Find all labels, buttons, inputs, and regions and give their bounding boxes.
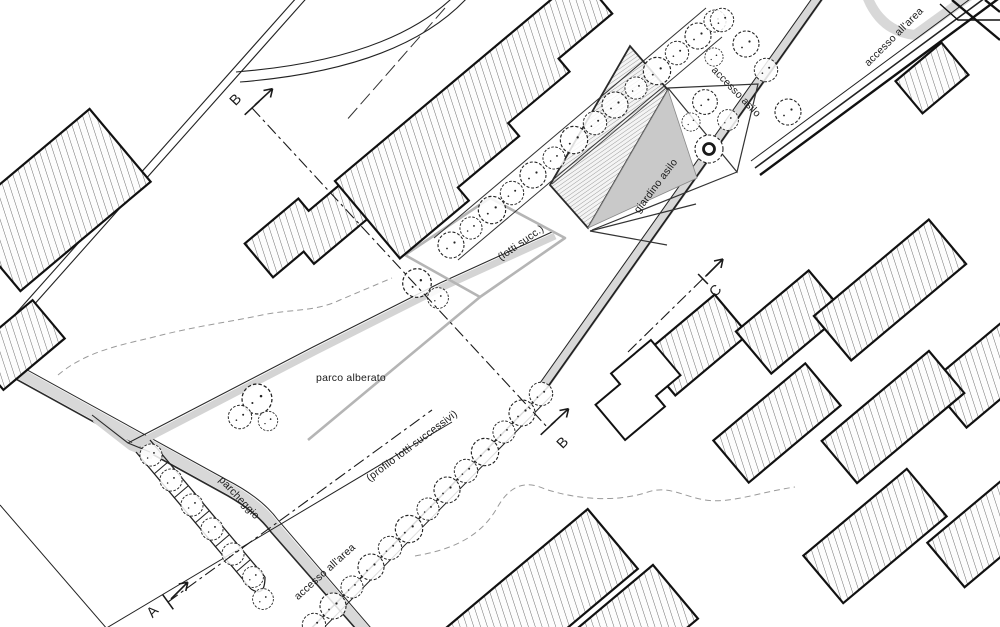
tree-icon bbox=[754, 58, 777, 81]
building-hatched bbox=[822, 351, 965, 483]
tree-icon bbox=[543, 147, 565, 169]
tree-icon bbox=[665, 41, 688, 64]
section-marker-a bbox=[163, 582, 188, 609]
tree-icon bbox=[643, 57, 670, 84]
tree-icon bbox=[243, 567, 264, 588]
tree-icon bbox=[583, 111, 606, 134]
tree-icon bbox=[341, 576, 363, 598]
building-hatched bbox=[896, 43, 969, 114]
buildings-context bbox=[0, 0, 1000, 627]
tree-icon bbox=[253, 589, 274, 610]
tree-icon bbox=[509, 400, 535, 426]
tree-icon bbox=[438, 232, 464, 258]
tree-icon bbox=[417, 498, 439, 520]
tree-icon bbox=[222, 543, 244, 565]
tree-icon bbox=[181, 494, 203, 516]
road-edge bbox=[236, 0, 470, 72]
tree-icon bbox=[428, 288, 449, 309]
boundary-lines bbox=[0, 422, 452, 627]
section-line-a bbox=[168, 410, 432, 602]
section-tick bbox=[163, 595, 174, 610]
tree-icon bbox=[493, 421, 515, 443]
tree-icon bbox=[454, 459, 477, 482]
tree-icon bbox=[500, 181, 523, 204]
tree-icon bbox=[560, 126, 587, 153]
tree-icon bbox=[378, 536, 401, 559]
building-hatched bbox=[713, 363, 840, 482]
tree-icon bbox=[733, 31, 759, 57]
building-hatched bbox=[803, 469, 946, 603]
road-gray-band bbox=[862, 0, 1000, 35]
tree-icon bbox=[775, 99, 801, 125]
tree-icon bbox=[302, 613, 325, 627]
tree-icon bbox=[602, 92, 628, 118]
tree-icon bbox=[140, 444, 162, 466]
trees-garden bbox=[682, 90, 739, 163]
tree-icon bbox=[201, 518, 223, 540]
tree-icon bbox=[625, 77, 647, 99]
road-edge bbox=[240, 0, 478, 82]
label-parco-alberato: parco alberato bbox=[316, 372, 386, 384]
tree-icon bbox=[160, 469, 182, 491]
building-hatched bbox=[0, 109, 151, 291]
tree-icon bbox=[693, 90, 718, 115]
path-shadow bbox=[131, 236, 555, 447]
section-marker-b-mid bbox=[541, 409, 569, 435]
section-marker-b-top bbox=[245, 89, 273, 115]
section-arrow bbox=[706, 259, 723, 276]
tree-icon bbox=[403, 269, 432, 298]
contour-line bbox=[58, 278, 392, 375]
ring-tree-icon bbox=[695, 135, 723, 163]
tree-icon bbox=[320, 593, 346, 619]
tree-icon bbox=[710, 8, 733, 31]
tree-icon bbox=[434, 477, 460, 503]
tree-icon bbox=[520, 162, 546, 188]
park-paths bbox=[92, 232, 555, 456]
section-arrow bbox=[551, 409, 569, 425]
section-arrow bbox=[255, 89, 273, 105]
tree-icon bbox=[228, 405, 251, 428]
site-plan-drawing bbox=[0, 0, 1000, 627]
tree-icon bbox=[705, 48, 723, 66]
tree-icon bbox=[395, 515, 422, 542]
tree-icon bbox=[682, 113, 700, 131]
tree-icon bbox=[358, 554, 384, 580]
tree-icon bbox=[471, 438, 498, 465]
building-hatched bbox=[814, 220, 966, 361]
tree-icon bbox=[529, 382, 552, 405]
tree-icon bbox=[460, 217, 482, 239]
tree-icon bbox=[478, 196, 505, 223]
site-plan-canvas: accesso all'area accesso asilo giardino … bbox=[0, 0, 1000, 627]
tree-icon bbox=[718, 110, 739, 131]
building-hatched bbox=[927, 469, 1000, 587]
tree-icon bbox=[258, 411, 278, 431]
road-top-right bbox=[751, 0, 1000, 175]
boundary-line bbox=[0, 505, 108, 627]
